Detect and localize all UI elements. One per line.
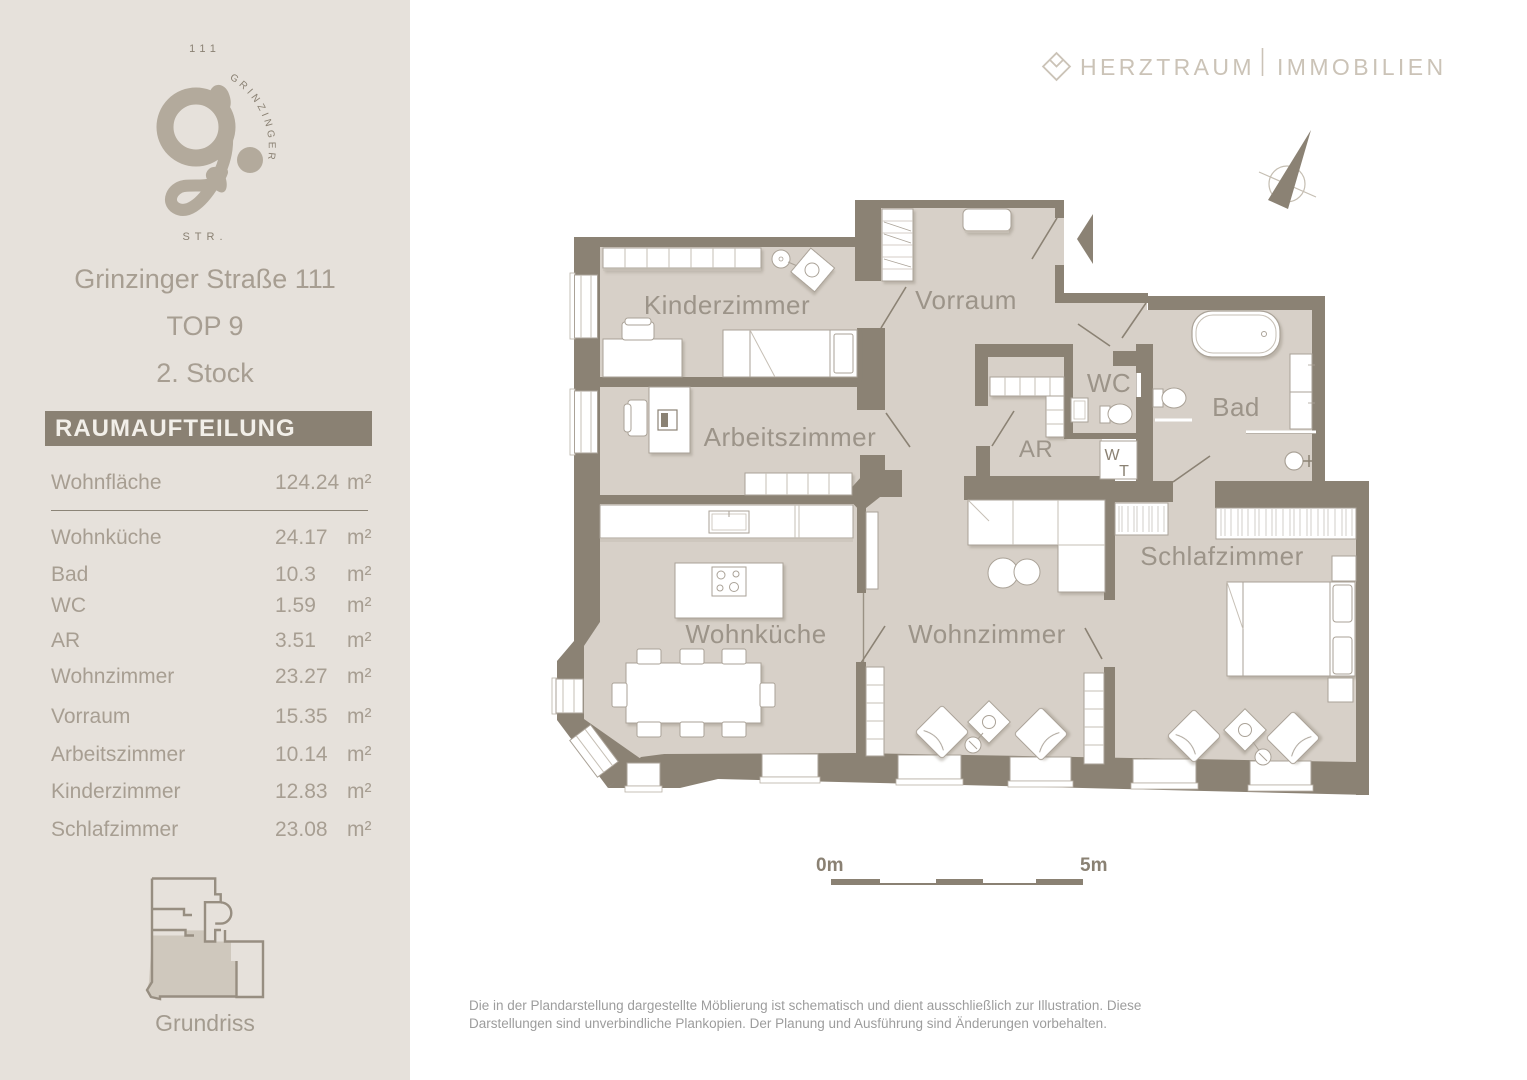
svg-text:W: W bbox=[1104, 447, 1120, 464]
svg-text:Wohnzimmer: Wohnzimmer bbox=[908, 619, 1066, 649]
svg-text:WC: WC bbox=[1087, 368, 1131, 398]
svg-text:AR: AR bbox=[1019, 436, 1053, 463]
svg-text:Wohnküche: Wohnküche bbox=[685, 619, 826, 649]
svg-text:Vorraum: Vorraum bbox=[915, 285, 1017, 315]
svg-text:Schlafzimmer: Schlafzimmer bbox=[1140, 541, 1303, 571]
svg-text:Bad: Bad bbox=[1212, 392, 1260, 422]
svg-text:T: T bbox=[1119, 463, 1129, 480]
svg-text:Arbeitszimmer: Arbeitszimmer bbox=[704, 422, 877, 452]
svg-text:Kinderzimmer: Kinderzimmer bbox=[644, 290, 810, 320]
